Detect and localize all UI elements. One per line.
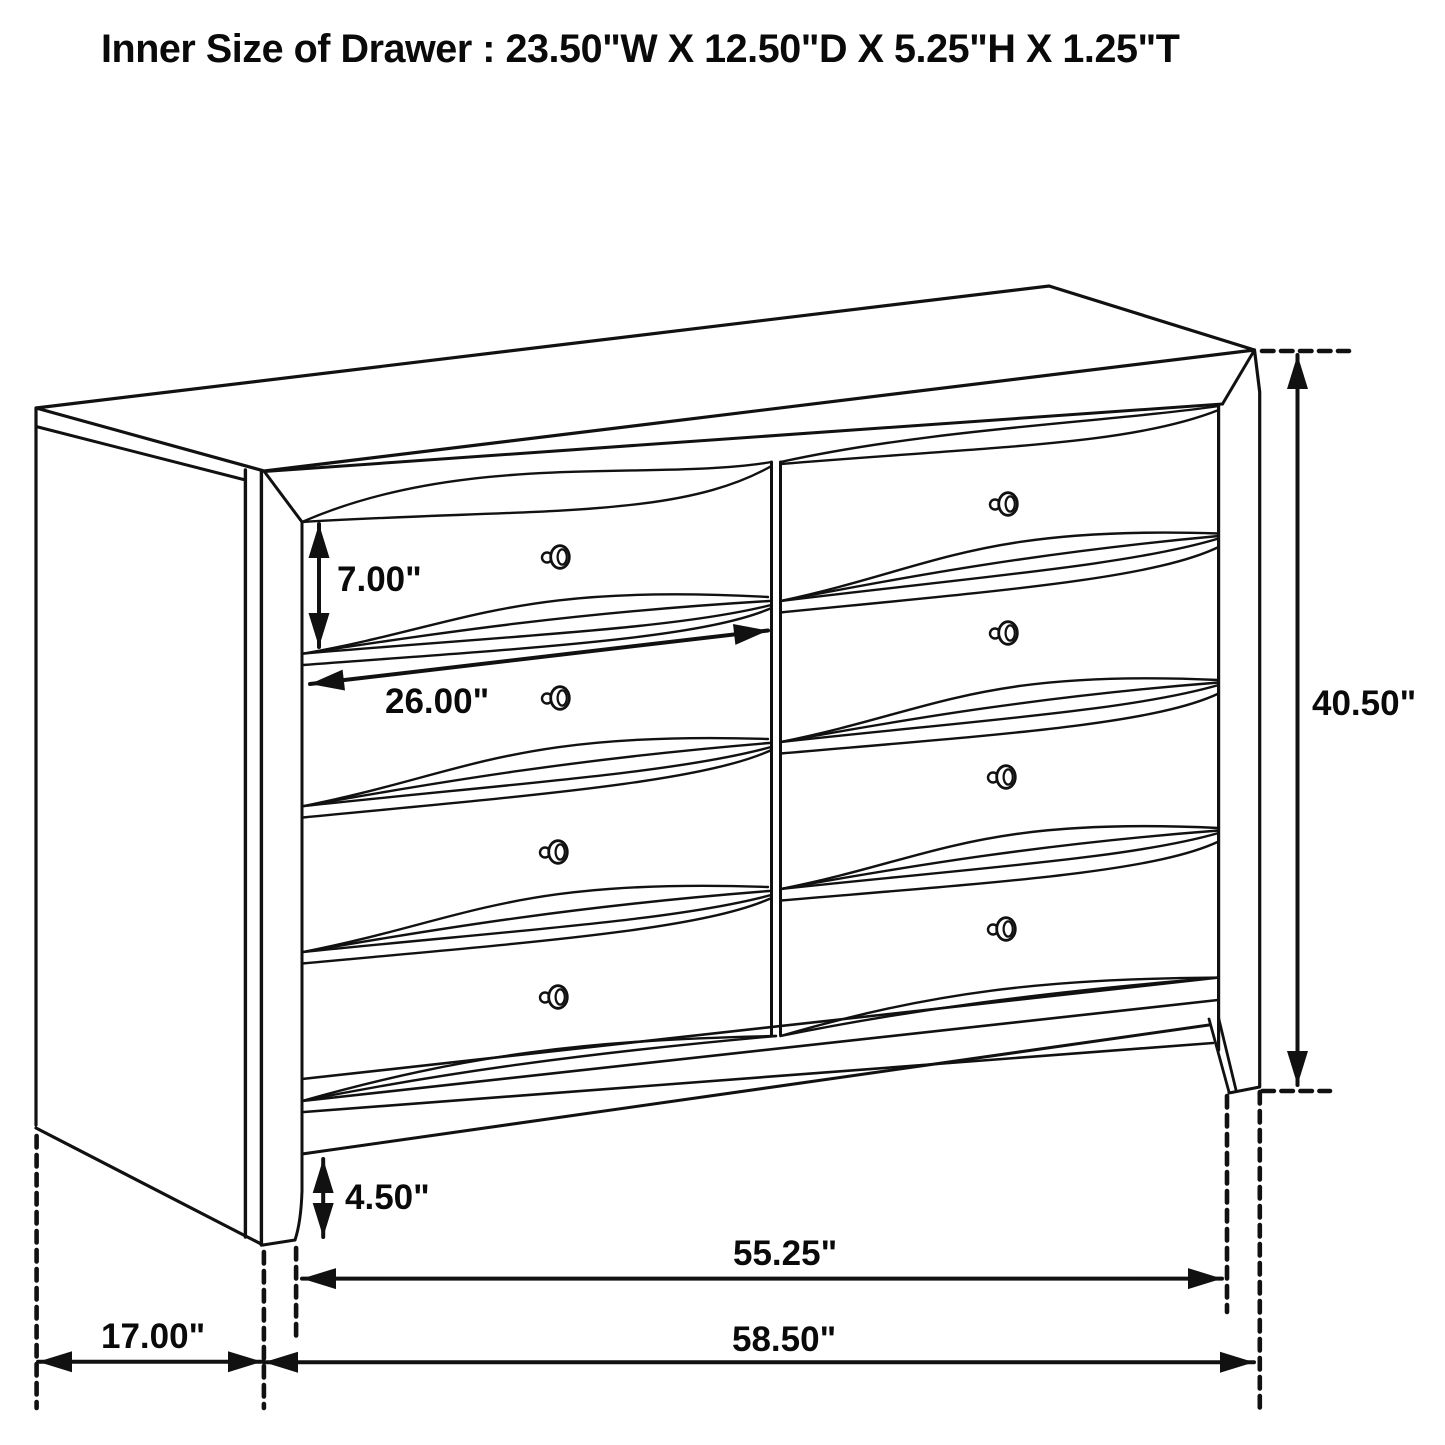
svg-text:40.50": 40.50" bbox=[1312, 684, 1416, 723]
svg-text:17.00": 17.00" bbox=[101, 1317, 205, 1356]
svg-text:26.00": 26.00" bbox=[385, 682, 489, 721]
svg-text:Inner Size of Drawer : 23.50"W: Inner Size of Drawer : 23.50"W X 12.50"D… bbox=[101, 27, 1180, 71]
svg-text:4.50": 4.50" bbox=[345, 1178, 430, 1217]
svg-text:7.00": 7.00" bbox=[337, 560, 422, 599]
svg-text:58.50": 58.50" bbox=[732, 1320, 836, 1359]
svg-text:55.25": 55.25" bbox=[733, 1234, 837, 1273]
